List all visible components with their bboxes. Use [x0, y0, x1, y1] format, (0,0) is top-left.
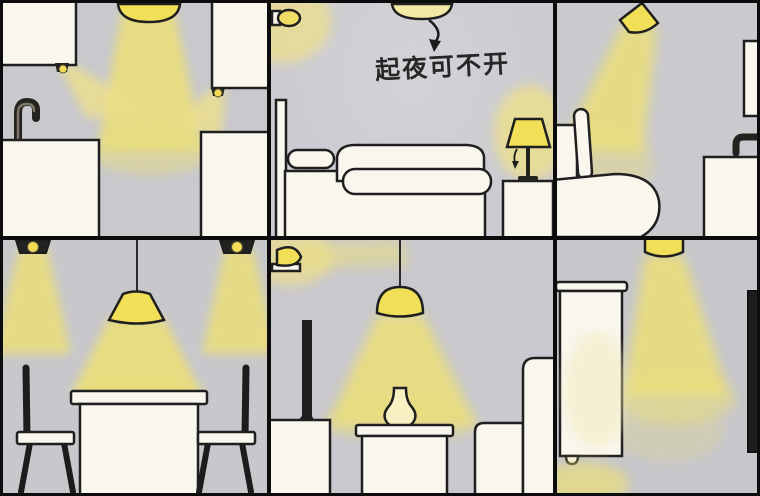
tv-cabinet: [271, 420, 330, 493]
panel-kitchen: [3, 3, 267, 236]
ceiling-dome-light-off: [392, 4, 452, 19]
nightstand: [503, 181, 553, 236]
panel-dining: [3, 240, 267, 493]
panel-toilet: [557, 3, 757, 236]
sink-vanity: [704, 157, 757, 236]
duvet-edge: [343, 169, 491, 194]
pendant-lamp-shade: [109, 292, 164, 324]
bedside-table-lamp-shade: [507, 119, 550, 147]
tv: [293, 320, 317, 426]
under-cabinet-bulb-left: [59, 65, 67, 73]
pendant-dome-shade: [377, 287, 423, 317]
under-cabinet-bulb-right: [214, 89, 222, 97]
table-top: [71, 391, 207, 404]
chair-left-seat: [17, 432, 74, 444]
floor-glow: [557, 462, 629, 493]
chair-right-front-leg: [199, 443, 208, 492]
ceiling-light-beam: [97, 9, 204, 151]
wall-sconce: [277, 247, 301, 265]
cabinet-side-glow: [565, 332, 629, 448]
base-cabinet: [201, 132, 267, 236]
cabinet-top-lip: [557, 282, 627, 291]
sconce-beam: [299, 240, 411, 268]
chair-left-front-leg: [64, 443, 73, 492]
coffee-table-top: [356, 425, 453, 436]
beam-fade-low: [613, 402, 725, 462]
chair-right-back-leg: [242, 443, 251, 492]
chair-right-back: [245, 368, 246, 437]
sink-counter: [3, 140, 99, 236]
spot-beam-left: [3, 248, 71, 354]
sofa-seat-back: [475, 423, 523, 493]
chair-right-seat: [198, 432, 255, 444]
comic-grid: 起夜可不开: [0, 0, 760, 496]
upper-cabinet-left: [3, 3, 76, 65]
spot-bulb-left: [28, 242, 39, 253]
bathroom-faucet: [736, 137, 757, 153]
sofa-armrest: [523, 358, 553, 493]
wall-night-light: [278, 10, 300, 26]
ceiling-light-beam: [623, 254, 729, 396]
ceiling-cylinder-light: [645, 240, 683, 257]
annotation-arrow: [429, 20, 438, 41]
mirror: [744, 41, 757, 116]
beam-floor-glow: [93, 135, 209, 175]
spot-bulb-right: [232, 242, 243, 253]
angled-spotlight: [620, 3, 658, 33]
table-lamp-base: [518, 176, 538, 181]
spot-beam-right: [202, 248, 267, 354]
panel-entry: [557, 240, 757, 493]
chair-left-back: [26, 368, 27, 437]
upper-cabinet-right: [212, 3, 267, 88]
toilet-bowl: [557, 174, 659, 236]
panel-living: [271, 240, 553, 493]
dark-door-panel: [748, 291, 757, 452]
coffee-table-body: [362, 436, 447, 493]
panel-bedroom: 起夜可不开: [271, 3, 553, 236]
pillow: [288, 150, 334, 168]
table-body: [80, 404, 198, 493]
chair-left-back-leg: [21, 443, 30, 492]
